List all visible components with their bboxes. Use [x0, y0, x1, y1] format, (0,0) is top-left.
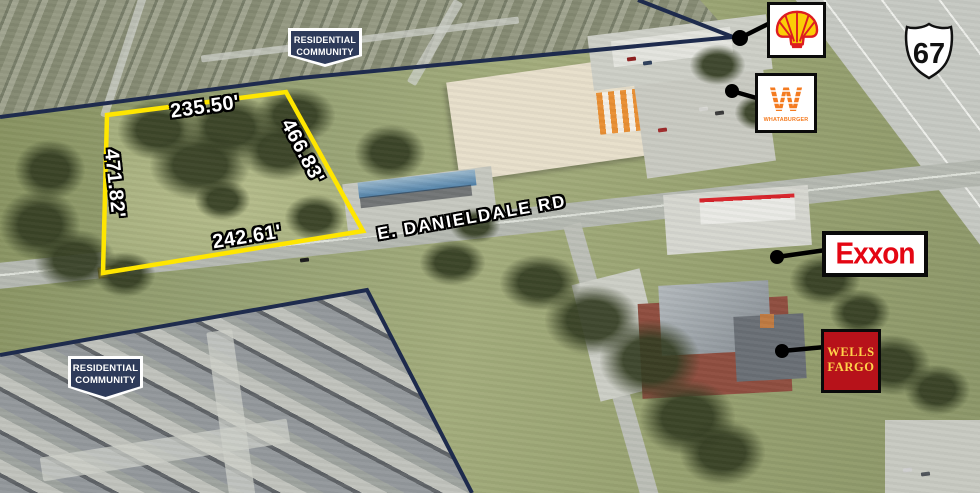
wells-fargo-line2: FARGO — [824, 360, 878, 375]
wells-fargo-logo-box: WELLS FARGO — [821, 329, 881, 393]
exxon-wordmark: Exxon — [835, 237, 914, 272]
us-route-67-shield: 67 — [903, 21, 955, 80]
badge-line2: COMMUNITY — [296, 47, 353, 59]
shell-logo-box — [767, 2, 826, 58]
badge-line1: RESIDENTIAL — [294, 35, 356, 47]
shell-pecten-icon — [774, 9, 820, 51]
whataburger-logo-box: W WHATABURGER — [755, 73, 817, 133]
exxon-logo-box: Exxon — [822, 231, 928, 277]
wells-fargo-line1: WELLS — [824, 345, 878, 360]
svg-text:W: W — [770, 84, 803, 116]
whataburger-wordmark: WHATABURGER — [764, 117, 809, 123]
badge-line1: RESIDENTIAL — [73, 363, 139, 375]
us-route-shield-icon: 67 — [903, 21, 955, 80]
route-number: 67 — [913, 38, 945, 70]
badge-line2: COMMUNITY — [75, 375, 135, 387]
aerial-site-map: 235.50' 466.83' 471.82' 242.61' E. DANIE… — [0, 0, 980, 493]
whataburger-w-icon: W — [766, 84, 806, 116]
